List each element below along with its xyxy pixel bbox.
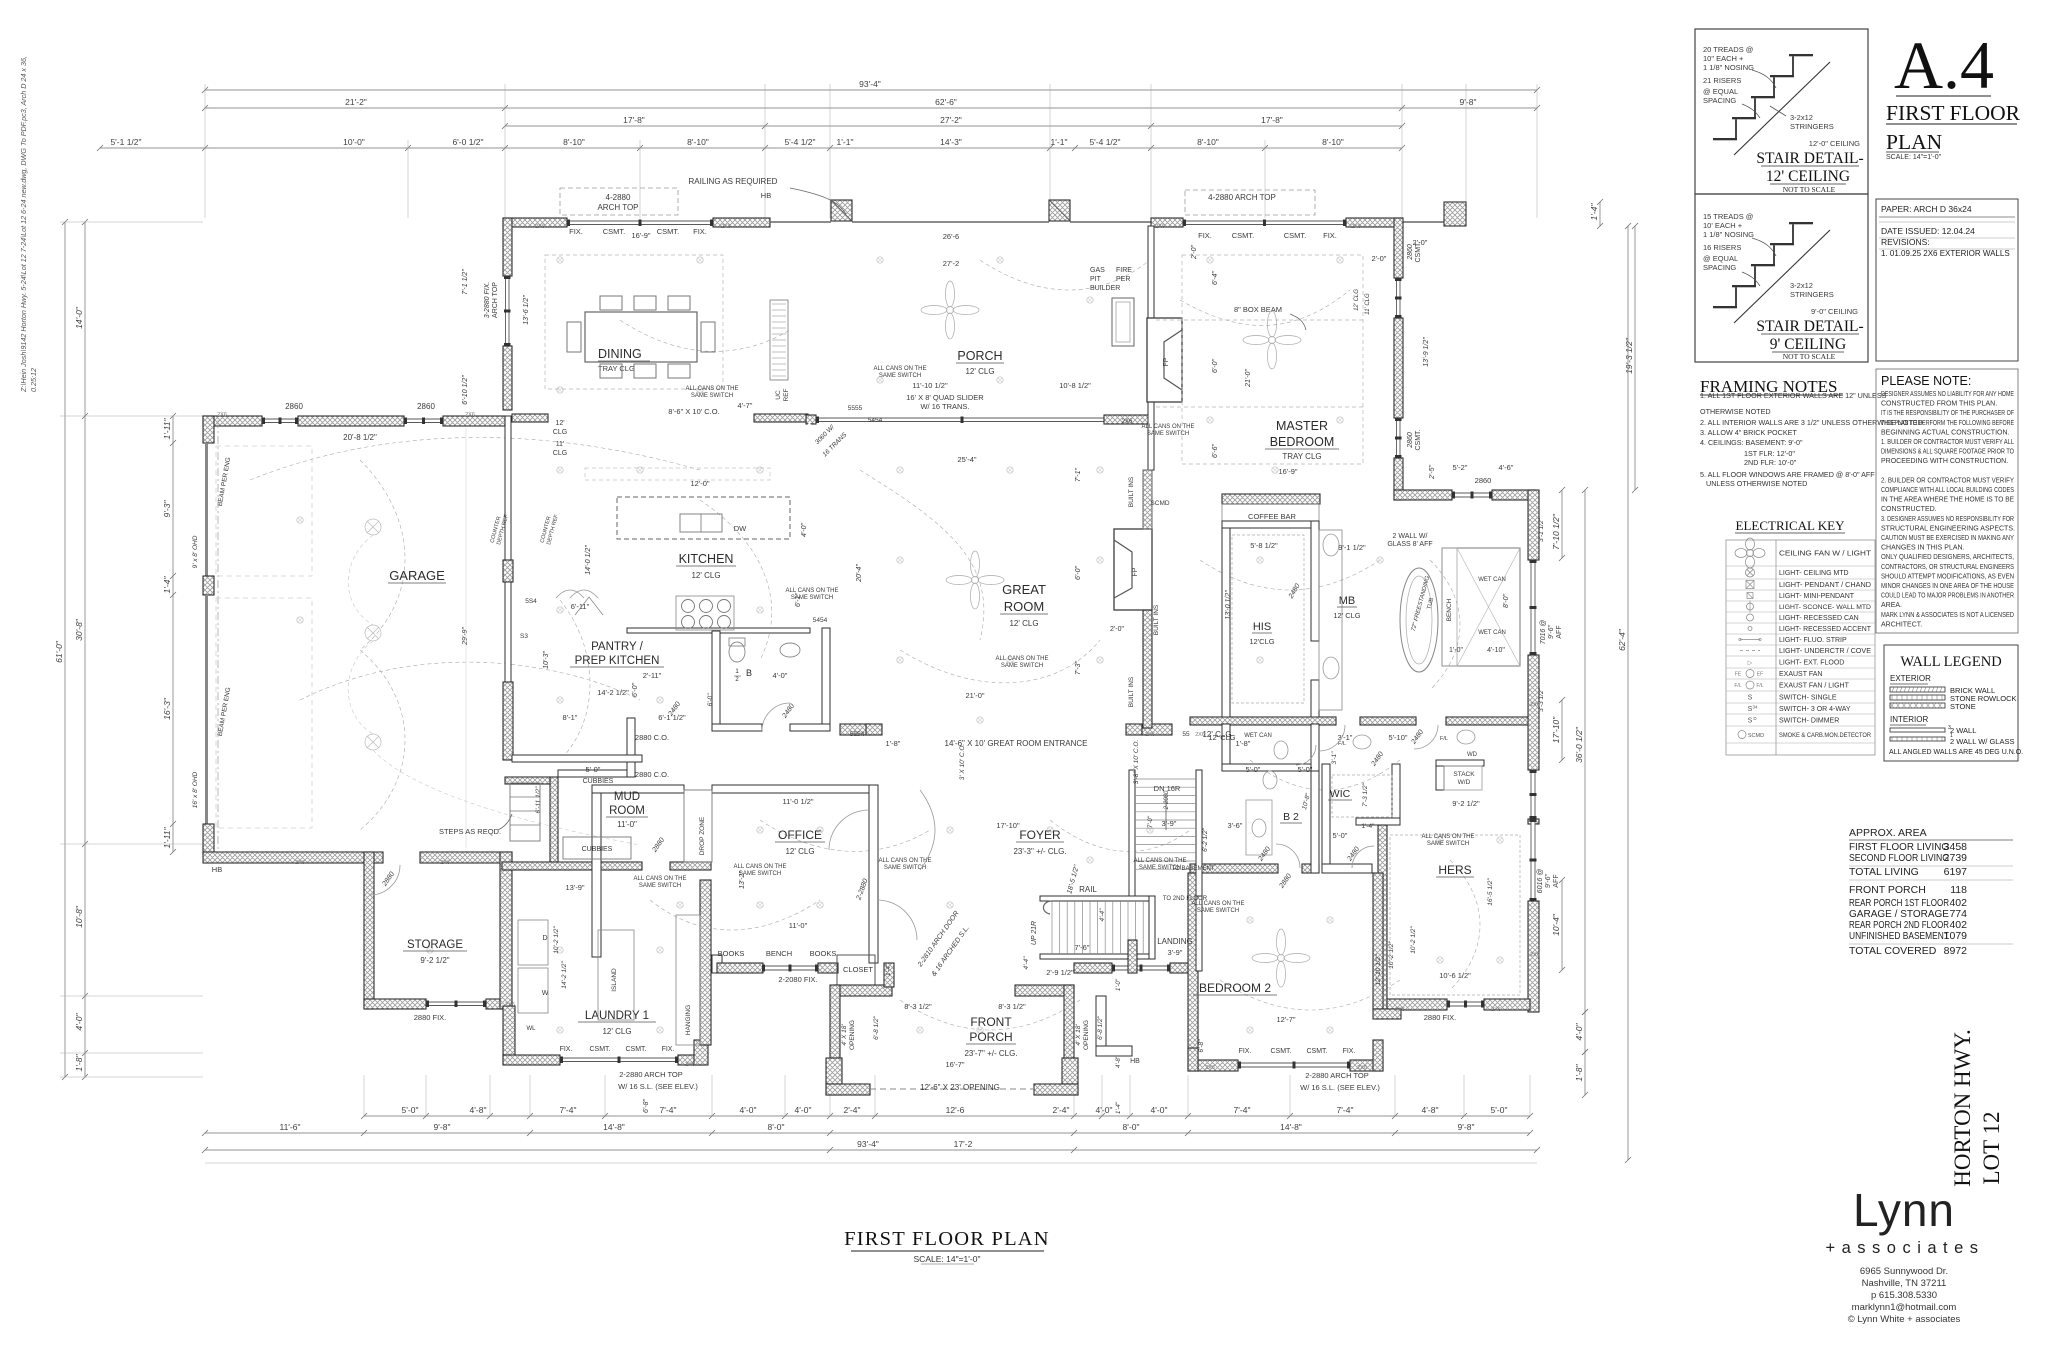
- svg-text:5'-0": 5'-0": [1298, 765, 1313, 774]
- svg-text:FIX.: FIX.: [1198, 231, 1212, 240]
- svg-text:14'-3": 14'-3": [940, 137, 962, 147]
- svg-text:4'-0": 4'-0": [801, 523, 808, 537]
- svg-text:2-2880 ARCH TOP: 2-2880 ARCH TOP: [619, 1070, 683, 1079]
- svg-text:6'-8": 6'-8": [643, 1099, 650, 1113]
- svg-text:9'-6": 9'-6": [1548, 625, 1555, 639]
- svg-text:Z:\Hein Josh\9142 Horton Hwy.: Z:\Hein Josh\9142 Horton Hwy. 5-24\Lot 1…: [19, 56, 28, 393]
- svg-text:CSMT.: CSMT.: [1232, 231, 1255, 240]
- svg-text:13'-0 1/2": 13'-0 1/2": [1225, 590, 1232, 620]
- svg-text:STONE: STONE: [1950, 702, 1976, 711]
- svg-text:CSMT.: CSMT.: [1415, 429, 1422, 450]
- svg-text:CSMT.: CSMT.: [1307, 1048, 1328, 1055]
- svg-text:2'-4": 2'-4": [844, 1105, 861, 1115]
- svg-text:6016 @: 6016 @: [1537, 869, 1544, 894]
- svg-text:9'-1 1/2": 9'-1 1/2": [1338, 543, 1366, 552]
- svg-text:CLG: CLG: [553, 450, 567, 457]
- svg-text:2880 FIX.: 2880 FIX.: [1424, 1013, 1457, 1022]
- svg-text:5454: 5454: [813, 617, 828, 624]
- svg-text:W/ 16 TRANS.: W/ 16 TRANS.: [920, 402, 969, 411]
- svg-text:2880 FIX.: 2880 FIX.: [414, 1013, 447, 1022]
- svg-text:5'-0": 5'-0": [1333, 831, 1348, 840]
- svg-text:2 WALL: 2 WALL: [1950, 726, 1976, 735]
- svg-text:LIGHT- PENDANT / CHAND: LIGHT- PENDANT / CHAND: [1779, 582, 1871, 589]
- svg-text:CONTRACTORS, OR STRUCTURAL ENG: CONTRACTORS, OR STRUCTURAL ENGINEERS: [1881, 564, 2014, 571]
- svg-text:4'-0": 4'-0": [1574, 1023, 1584, 1041]
- svg-text:CHANGES IN THIS PLAN.: CHANGES IN THIS PLAN.: [1881, 545, 1965, 552]
- svg-text:ALL CANS ON THE: ALL CANS ON THE: [1191, 901, 1244, 907]
- svg-text:5'-8 1/2": 5'-8 1/2": [1250, 541, 1278, 550]
- svg-text:4'-0": 4'-0": [795, 1105, 812, 1115]
- svg-text:8'-3 1/2": 8'-3 1/2": [904, 1002, 932, 1011]
- svg-text:SAME SWITCH: SAME SWITCH: [639, 883, 681, 889]
- svg-text:7'-1": 7'-1": [1075, 468, 1082, 482]
- svg-text:UP 21R: UP 21R: [1031, 921, 1038, 945]
- svg-text:13'-9": 13'-9": [565, 883, 584, 892]
- svg-text:2X6: 2X6: [1395, 1007, 1405, 1013]
- svg-text:MUD: MUD: [614, 791, 640, 803]
- svg-text:2X6: 2X6: [1122, 419, 1133, 425]
- svg-text:8'-10": 8'-10": [563, 137, 585, 147]
- svg-text:21 RISERS: 21 RISERS: [1703, 76, 1741, 85]
- svg-text:BOOKS: BOOKS: [810, 949, 837, 958]
- svg-text:55: 55: [1182, 731, 1190, 738]
- svg-text:STRINGERS: STRINGERS: [1790, 290, 1834, 299]
- svg-text:9'-6": 9'-6": [1545, 874, 1552, 888]
- svg-text:30'-8": 30'-8": [74, 618, 84, 641]
- svg-text:AFF: AFF: [1556, 625, 1563, 638]
- svg-text:HB: HB: [212, 865, 222, 874]
- svg-text:FE: FE: [1735, 672, 1742, 678]
- svg-text:LIGHT- FLUO. STRIP: LIGHT- FLUO. STRIP: [1779, 637, 1847, 644]
- svg-text:8972: 8972: [1944, 945, 1968, 957]
- svg-text:14'-2 1/2": 14'-2 1/2": [561, 961, 568, 989]
- svg-text:9'-0" CEILING: 9'-0" CEILING: [1811, 307, 1858, 316]
- svg-text:6965 Sunnywood Dr.: 6965 Sunnywood Dr.: [1860, 1266, 1948, 1277]
- svg-text:1'-4": 1'-4": [162, 576, 172, 594]
- svg-text:36'-0 1/2": 36'-0 1/2": [1574, 726, 1584, 763]
- svg-text:RAILING AS REQUIRED: RAILING AS REQUIRED: [689, 177, 778, 186]
- svg-text:DATE ISSUED: 12.04.24: DATE ISSUED: 12.04.24: [1881, 226, 1975, 236]
- svg-text:12': 12': [555, 420, 564, 427]
- svg-text:S3: S3: [520, 633, 528, 640]
- svg-text:8'-6" X 10' C.O.: 8'-6" X 10' C.O.: [668, 407, 719, 416]
- svg-text:26'-6: 26'-6: [943, 232, 959, 241]
- svg-text:17'-2: 17'-2: [954, 1139, 973, 1149]
- svg-text:GARAGE: GARAGE: [389, 568, 445, 583]
- svg-text:MARK LYNN & ASSOCIATES IS NOT: MARK LYNN & ASSOCIATES IS NOT A LICENSED: [1881, 612, 2014, 619]
- svg-text:1'-1": 1'-1": [1051, 137, 1068, 147]
- svg-text:8'-1": 8'-1": [563, 713, 578, 722]
- svg-text:4'-4": 4'-4": [1023, 956, 1030, 970]
- svg-text:9' x 8' OHD: 9' x 8' OHD: [192, 535, 199, 568]
- svg-text:3-2880 FIX.: 3-2880 FIX.: [484, 282, 491, 319]
- svg-text:REVISIONS:: REVISIONS:: [1881, 237, 1930, 247]
- svg-text:DINING: DINING: [598, 347, 642, 361]
- svg-text:2'-0": 2'-0": [1372, 254, 1387, 263]
- svg-text:F/L: F/L: [1734, 683, 1741, 689]
- svg-text:HERS: HERS: [1438, 863, 1471, 877]
- svg-text:2X6: 2X6: [855, 732, 865, 738]
- svg-text:2X6: 2X6: [1351, 224, 1361, 230]
- svg-text:12'-0" CEILING: 12'-0" CEILING: [1809, 139, 1860, 148]
- svg-text:MB: MB: [1339, 595, 1356, 607]
- svg-text:SWITCH- DIMMER: SWITCH- DIMMER: [1779, 718, 1839, 725]
- svg-text:COMPLIANCE WITH ALL LOCAL BUIL: COMPLIANCE WITH ALL LOCAL BUILDING CODES: [1881, 487, 2014, 494]
- svg-text:SPACING: SPACING: [1703, 96, 1736, 105]
- svg-text:21'-2": 21'-2": [345, 97, 367, 107]
- svg-text:FIRE: FIRE: [1116, 267, 1132, 274]
- svg-text:16'-3": 16'-3": [162, 697, 172, 720]
- svg-text:2X6: 2X6: [1530, 952, 1540, 958]
- svg-text:5. ALL FLOOR WINDOWS ARE FRAME: 5. ALL FLOOR WINDOWS ARE FRAMED @ 8'-0" …: [1700, 470, 1875, 479]
- svg-text:27'-2: 27'-2: [943, 259, 959, 268]
- svg-text:17'-8": 17'-8": [623, 115, 645, 125]
- svg-text:4'-6": 4'-6": [1499, 463, 1514, 472]
- svg-text:CSMT.: CSMT.: [590, 1046, 611, 1053]
- svg-text:FIX.: FIX.: [1343, 1048, 1356, 1055]
- svg-text:4-2880 ARCH TOP: 4-2880 ARCH TOP: [1208, 193, 1276, 202]
- svg-text:13'-9 1/2": 13'-9 1/2": [1423, 337, 1430, 367]
- svg-text:5'-0": 5'-0": [1246, 765, 1261, 774]
- svg-text:27'-2": 27'-2": [940, 115, 962, 125]
- svg-text:1'-0": 1'-0": [1116, 978, 1122, 991]
- svg-text:TOTAL LIVING: TOTAL LIVING: [1849, 866, 1919, 878]
- svg-text:10'-2 1/2": 10'-2 1/2": [1410, 926, 1417, 954]
- svg-text:8'-10": 8'-10": [1322, 137, 1344, 147]
- svg-text:12' CLG: 12' CLG: [965, 367, 994, 376]
- svg-text:8'-10": 8'-10": [687, 137, 709, 147]
- svg-text:4'-0": 4'-0": [740, 1105, 757, 1115]
- svg-text:BUILT INS: BUILT INS: [1153, 604, 1160, 635]
- svg-text:12' CLG: 12' CLG: [1009, 619, 1038, 628]
- svg-text:23'-7" +/- CLG.: 23'-7" +/- CLG.: [964, 1049, 1017, 1058]
- svg-text:17'-10": 17'-10": [996, 821, 1020, 830]
- svg-text:2860: 2860: [285, 402, 303, 411]
- svg-text:2 WALL W/: 2 WALL W/: [1393, 533, 1428, 540]
- svg-text:PER: PER: [1116, 276, 1130, 283]
- svg-text:CSMT.: CSMT.: [626, 1046, 647, 1053]
- svg-text:LIGHT- EXT. FLOOD: LIGHT- EXT. FLOOD: [1779, 660, 1844, 667]
- svg-text:WL: WL: [527, 1026, 537, 1032]
- svg-text:4'-7": 4'-7": [738, 401, 753, 410]
- svg-text:2'-4": 2'-4": [1053, 1105, 1070, 1115]
- svg-text:IT IS THE RESPONSIBILITY OF TH: IT IS THE RESPONSIBILITY OF THE PURCHASE…: [1881, 410, 2014, 417]
- svg-text:1079: 1079: [1944, 930, 1968, 942]
- svg-text:7'-10 1/2": 7'-10 1/2": [1551, 513, 1561, 550]
- svg-text:BEGINNING ACTUAL CONSTRUCTION.: BEGINNING ACTUAL CONSTRUCTION.: [1881, 429, 2010, 436]
- svg-text:KITCHEN: KITCHEN: [679, 552, 734, 566]
- svg-text:SAME SWITCH: SAME SWITCH: [879, 373, 921, 379]
- svg-text:BENCH: BENCH: [1446, 598, 1453, 621]
- svg-text:SAME SWITCH: SAME SWITCH: [1001, 663, 1043, 669]
- svg-text:3'-1": 3'-1": [1331, 751, 1338, 765]
- svg-text:Nashville, TN 37211: Nashville, TN 37211: [1862, 1278, 1947, 1289]
- svg-text:17'-10": 17'-10": [1551, 716, 1561, 743]
- svg-text:12' CLG: 12' CLG: [1208, 733, 1235, 742]
- svg-text:21'-0": 21'-0": [965, 691, 984, 700]
- svg-text:16' X 8' QUAD SLIDER: 16' X 8' QUAD SLIDER: [906, 393, 984, 402]
- svg-text:6'-0": 6'-0": [1075, 566, 1082, 580]
- svg-text:A.4: A.4: [1894, 27, 1994, 103]
- svg-text:12' CLG: 12' CLG: [691, 571, 720, 580]
- svg-text:ELECTRICAL KEY: ELECTRICAL KEY: [1736, 518, 1846, 533]
- svg-text:@ EQUAL: @ EQUAL: [1703, 254, 1738, 263]
- svg-text:1'-11": 1'-11": [162, 418, 172, 440]
- svg-text:CONSTRUCTED FROM THIS PLAN.: CONSTRUCTED FROM THIS PLAN.: [1881, 401, 1997, 408]
- svg-text:BUILT INS: BUILT INS: [1128, 476, 1135, 507]
- svg-text:2X6: 2X6: [1491, 1007, 1501, 1013]
- svg-text:61'-0": 61'-0": [54, 640, 64, 663]
- svg-text:2'-5": 2'-5": [1429, 465, 1436, 480]
- svg-text:14'-8": 14'-8": [603, 1122, 625, 1132]
- svg-text:7016 @: 7016 @: [1540, 620, 1547, 645]
- svg-text:OFFICE: OFFICE: [778, 828, 822, 842]
- svg-text:THIS PLAN TO PERFORM THE FOLLO: THIS PLAN TO PERFORM THE FOLLOWING BEFOR…: [1881, 420, 2014, 427]
- svg-text:CSMT.: CSMT.: [1271, 1048, 1292, 1055]
- svg-text:6'-0": 6'-0": [1212, 359, 1219, 373]
- svg-text:8'-10": 8'-10": [1197, 137, 1219, 147]
- svg-text:3-2x12: 3-2x12: [1790, 281, 1813, 290]
- svg-text:8'-3 1/2": 8'-3 1/2": [998, 1002, 1026, 1011]
- svg-text:1 1/8" NOSING: 1 1/8" NOSING: [1703, 63, 1754, 72]
- svg-text:4'-8": 4'-8": [470, 1105, 487, 1115]
- svg-text:2X6: 2X6: [1357, 1065, 1367, 1071]
- svg-text:CONSTRUCTED.: CONSTRUCTED.: [1881, 506, 1937, 513]
- svg-text:ALL CANS ON THE: ALL CANS ON THE: [733, 864, 786, 870]
- svg-text:1'-1": 1'-1": [837, 137, 854, 147]
- svg-text:4'-10": 4'-10": [1487, 647, 1505, 654]
- svg-text:4'-0": 4'-0": [1096, 1105, 1113, 1115]
- svg-text:17'-8": 17'-8": [1261, 115, 1283, 125]
- svg-text:12' CLG: 12' CLG: [785, 847, 814, 856]
- svg-text:1'-0": 1'-0": [1449, 647, 1463, 654]
- svg-text:6'-11 1/2": 6'-11 1/2": [535, 786, 542, 814]
- svg-text:STAIR DETAIL-: STAIR DETAIL-: [1756, 318, 1863, 335]
- svg-text:IN THE AREA WHERE THE HOME IS: IN THE AREA WHERE THE HOME IS TO BE: [1881, 497, 2014, 504]
- svg-text:FIX.: FIX.: [693, 227, 707, 236]
- svg-text:9'-2 1/2": 9'-2 1/2": [1452, 799, 1480, 808]
- svg-text:B 2: B 2: [1283, 811, 1299, 823]
- svg-text:8'-0": 8'-0": [768, 1122, 785, 1132]
- svg-text:BUILDER: BUILDER: [1090, 285, 1120, 292]
- svg-text:16 RISERS: 16 RISERS: [1703, 243, 1741, 252]
- svg-text:7'-6": 7'-6": [1075, 943, 1090, 952]
- svg-text:CSMT.: CSMT.: [603, 227, 626, 236]
- svg-text:EXTERIOR: EXTERIOR: [1890, 674, 1931, 683]
- svg-text:5'-10": 5'-10": [1388, 733, 1407, 742]
- svg-text:ALL CANS ON THE: ALL CANS ON THE: [878, 858, 931, 864]
- svg-text:6'-8": 6'-8": [1198, 1039, 1205, 1053]
- svg-text:EXAUST FAN / LIGHT: EXAUST FAN / LIGHT: [1779, 683, 1850, 690]
- svg-text:BENCH: BENCH: [766, 949, 792, 958]
- svg-text:5'-4 1/2": 5'-4 1/2": [1089, 137, 1120, 147]
- svg-text:WIC: WIC: [1330, 788, 1351, 800]
- svg-text:1ST FLR: 12'-0": 1ST FLR: 12'-0": [1744, 449, 1795, 458]
- svg-text:AFF: AFF: [1553, 874, 1560, 887]
- svg-text:12'CLG: 12'CLG: [1249, 637, 1274, 646]
- svg-text:SWITCH- SINGLE: SWITCH- SINGLE: [1779, 695, 1837, 702]
- svg-text:12' CLG: 12' CLG: [1354, 289, 1360, 311]
- svg-text:3' X 10' C.O.: 3' X 10' C.O.: [959, 744, 966, 781]
- svg-text:13'-6 1/2": 13'-6 1/2": [523, 295, 530, 325]
- svg-text:DROP ZONE: DROP ZONE: [699, 816, 706, 855]
- svg-text:2X6: 2X6: [1195, 732, 1205, 738]
- svg-text:34: 34: [1752, 705, 1758, 710]
- svg-text:11'-10 1/2": 11'-10 1/2": [912, 381, 948, 390]
- svg-text:OPENING: OPENING: [849, 1020, 856, 1050]
- svg-text:UNLESS OTHERWISE NOTED: UNLESS OTHERWISE NOTED: [1706, 479, 1807, 488]
- svg-text:11'-0 1/2": 11'-0 1/2": [782, 797, 813, 806]
- svg-text:2880 C.O.: 2880 C.O.: [635, 733, 669, 742]
- svg-text:12'-6: 12'-6: [946, 1105, 965, 1115]
- svg-text:12' CLG: 12' CLG: [1333, 611, 1360, 620]
- svg-text:1. ALL 1ST FLOOR EXTERIOR WALL: 1. ALL 1ST FLOOR EXTERIOR WALLS ARE 12" …: [1700, 391, 1887, 400]
- svg-text:1'-4": 1'-4": [1116, 1101, 1122, 1114]
- svg-text:HB: HB: [761, 191, 771, 200]
- svg-text:20'-8 1/2": 20'-8 1/2": [343, 433, 377, 442]
- svg-text:SAME SWITCH: SAME SWITCH: [1197, 908, 1239, 914]
- svg-text:WET CAN: WET CAN: [1478, 577, 1506, 583]
- svg-text:SECOND FLOOR LIVING: SECOND FLOOR LIVING: [1849, 852, 1949, 864]
- svg-text:1'-4": 1'-4": [886, 963, 892, 976]
- svg-text:2X6: 2X6: [1205, 1065, 1215, 1071]
- svg-text:3'-8" X 10' C.O.: 3'-8" X 10' C.O.: [1133, 740, 1140, 785]
- svg-text:ARCH TOP: ARCH TOP: [492, 282, 499, 318]
- svg-text:3-2x12: 3-2x12: [1790, 113, 1813, 122]
- svg-text:BUILT INS: BUILT INS: [1128, 676, 1135, 707]
- svg-text:12'-7": 12'-7": [1276, 1015, 1295, 1024]
- svg-text:5S4: 5S4: [525, 598, 537, 605]
- svg-text:10'-4": 10'-4": [1551, 913, 1561, 936]
- svg-text:3: 3: [1948, 725, 1951, 731]
- svg-text:CAUTION MUST BE EXERCISED IN M: CAUTION MUST BE EXERCISED IN MAKING ANY: [1881, 535, 2014, 542]
- svg-text:6197: 6197: [1944, 866, 1968, 878]
- svg-text:STAIR DETAIL-: STAIR DETAIL-: [1756, 150, 1863, 167]
- svg-text:STRUCTURAL ENGINEERING ASPECTS: STRUCTURAL ENGINEERING ASPECTS.: [1881, 525, 2015, 532]
- svg-text:marklynn1@hotmail.com: marklynn1@hotmail.com: [1852, 1302, 1957, 1313]
- svg-text:6'-0": 6'-0": [707, 693, 714, 707]
- svg-text:SPACING: SPACING: [1703, 263, 1736, 272]
- svg-text:5454: 5454: [868, 417, 883, 424]
- svg-text:PORCH: PORCH: [969, 1030, 1012, 1044]
- svg-text:F/L: F/L: [1440, 736, 1448, 742]
- svg-text:6'-2 1/2": 6'-2 1/2": [1202, 827, 1209, 851]
- svg-text:ALL CANS ON THE: ALL CANS ON THE: [873, 366, 926, 372]
- svg-text:BEDROOM: BEDROOM: [1270, 435, 1335, 449]
- svg-text:9'-8": 9'-8": [1458, 1122, 1475, 1132]
- svg-text:12'-6" X 23' OPENING: 12'-6" X 23' OPENING: [920, 1083, 1000, 1092]
- svg-text:5'-0": 5'-0": [586, 765, 601, 774]
- svg-text:10' EACH +: 10' EACH +: [1703, 221, 1743, 230]
- svg-text:2X6: 2X6: [295, 860, 305, 866]
- svg-text:9' CEILING: 9' CEILING: [1770, 336, 1846, 353]
- svg-text:2X6: 2X6: [1155, 224, 1165, 230]
- svg-text:GREAT: GREAT: [1002, 582, 1046, 597]
- svg-text:LANDING: LANDING: [1157, 937, 1193, 946]
- svg-text:WD: WD: [1467, 752, 1478, 758]
- svg-text:2739: 2739: [1944, 852, 1968, 864]
- svg-text:20'-4": 20'-4": [856, 564, 863, 583]
- svg-text:2'-9 1/2": 2'-9 1/2": [1046, 968, 1074, 977]
- svg-text:PROCEEDING WITH CONSTRUCTION.: PROCEEDING WITH CONSTRUCTION.: [1881, 458, 2008, 465]
- svg-text:ONLY QUALIFIED DESIGNERS, ARCH: ONLY QUALIFIED DESIGNERS, ARCHITECTS,: [1881, 554, 2014, 561]
- svg-text:4. CEILINGS: BASEMENT: 9'-0": 4. CEILINGS: BASEMENT: 9'-0": [1700, 438, 1803, 447]
- svg-text:LIGHT- SCONCE- WALL MTD: LIGHT- SCONCE- WALL MTD: [1779, 604, 1871, 611]
- svg-text:2X6: 2X6: [1530, 702, 1540, 708]
- svg-text:STORAGE: STORAGE: [407, 939, 463, 951]
- svg-text:DESIGNER ASSUMES NO LIABILITY: DESIGNER ASSUMES NO LIABILITY FOR ANY HO…: [1881, 391, 2014, 398]
- svg-text:16'-5 1/2": 16'-5 1/2": [1487, 878, 1494, 906]
- svg-text:16' x 8' OHD: 16' x 8' OHD: [192, 771, 199, 808]
- svg-text:PIT: PIT: [1090, 276, 1102, 283]
- svg-text:PLEASE NOTE:: PLEASE NOTE:: [1881, 374, 1971, 388]
- svg-text:16'-9": 16'-9": [631, 231, 650, 240]
- svg-text:11'-0": 11'-0": [789, 921, 808, 930]
- svg-text:3'-6": 3'-6": [1228, 821, 1243, 830]
- svg-text:7'-3 1/2": 7'-3 1/2": [1362, 782, 1369, 806]
- svg-text:2X6: 2X6: [685, 1062, 695, 1068]
- svg-text:PREP KITCHEN: PREP KITCHEN: [575, 655, 660, 667]
- svg-text:2-2080: 2-2080: [1164, 790, 1170, 810]
- svg-text:EXAUST FAN: EXAUST FAN: [1779, 671, 1822, 678]
- svg-text:5555: 5555: [848, 405, 863, 412]
- svg-text:NOT TO SCALE: NOT TO SCALE: [1783, 185, 1836, 194]
- svg-text:12' CEILING: 12' CEILING: [1766, 168, 1850, 185]
- svg-text:1'-8": 1'-8": [1574, 1064, 1584, 1082]
- svg-text:9'-3": 9'-3": [162, 500, 172, 518]
- svg-text:11'-6": 11'-6": [279, 1122, 300, 1132]
- svg-text:9'-2 1/2": 9'-2 1/2": [420, 956, 449, 965]
- svg-text:4'-8": 4'-8": [1116, 1055, 1122, 1068]
- svg-text:ALL CANS ON THE: ALL CANS ON THE: [1421, 834, 1474, 840]
- svg-text:14'-0 1/2": 14'-0 1/2": [585, 545, 592, 575]
- svg-text:2860: 2860: [417, 402, 435, 411]
- svg-text:SAME SWITCH: SAME SWITCH: [791, 595, 833, 601]
- svg-text:1 1/8" NOSING: 1 1/8" NOSING: [1703, 230, 1754, 239]
- svg-text:OPENING: OPENING: [1083, 1020, 1090, 1050]
- svg-text:10'-6 1/2": 10'-6 1/2": [1439, 971, 1471, 980]
- svg-text:7'-4": 7'-4": [560, 1105, 577, 1115]
- svg-text:93'-4": 93'-4": [857, 1139, 879, 1149]
- svg-text:7'-4": 7'-4": [1234, 1105, 1251, 1115]
- svg-text:S: S: [1748, 718, 1753, 725]
- svg-text:WALL LEGEND: WALL LEGEND: [1900, 654, 2001, 670]
- svg-text:2-2080 FIX.: 2-2080 FIX.: [778, 975, 817, 984]
- svg-text:LOT 12: LOT 12: [1979, 1111, 2004, 1184]
- svg-text:8'-0": 8'-0": [1123, 1122, 1140, 1132]
- svg-text:6'-8 1/2": 6'-8 1/2": [1097, 1015, 1104, 1039]
- svg-text:STRINGERS: STRINGERS: [1790, 122, 1834, 131]
- svg-text:CEILING FAN W / LIGHT: CEILING FAN W / LIGHT: [1779, 551, 1872, 558]
- svg-text:8'-0": 8'-0": [1503, 594, 1510, 608]
- svg-text:3'-3 1/2": 3'-3 1/2": [1538, 687, 1545, 711]
- svg-text:FIX.: FIX.: [1323, 231, 1337, 240]
- svg-text:14'-8": 14'-8": [1280, 1122, 1302, 1132]
- svg-text:ALL CANS ON THE: ALL CANS ON THE: [1141, 424, 1194, 430]
- svg-text:FIRST FLOOR PLAN: FIRST FLOOR PLAN: [844, 1228, 1050, 1250]
- svg-text:FP: FP: [1132, 567, 1139, 576]
- svg-text:2X6: 2X6: [505, 1002, 515, 1008]
- svg-text:TO BASEMENT: TO BASEMENT: [1172, 866, 1215, 872]
- svg-text:2X6: 2X6: [217, 412, 227, 418]
- svg-text:11'-0": 11'-0": [617, 820, 637, 829]
- svg-text:ALL CANS ON THE: ALL CANS ON THE: [633, 876, 686, 882]
- svg-text:B: B: [746, 668, 752, 678]
- svg-text:TOTAL COVERED: TOTAL COVERED: [1849, 945, 1937, 957]
- svg-text:MASTER: MASTER: [1276, 419, 1328, 433]
- svg-text:REF: REF: [783, 388, 790, 401]
- svg-text:BEDROOM 2: BEDROOM 2: [1199, 981, 1271, 995]
